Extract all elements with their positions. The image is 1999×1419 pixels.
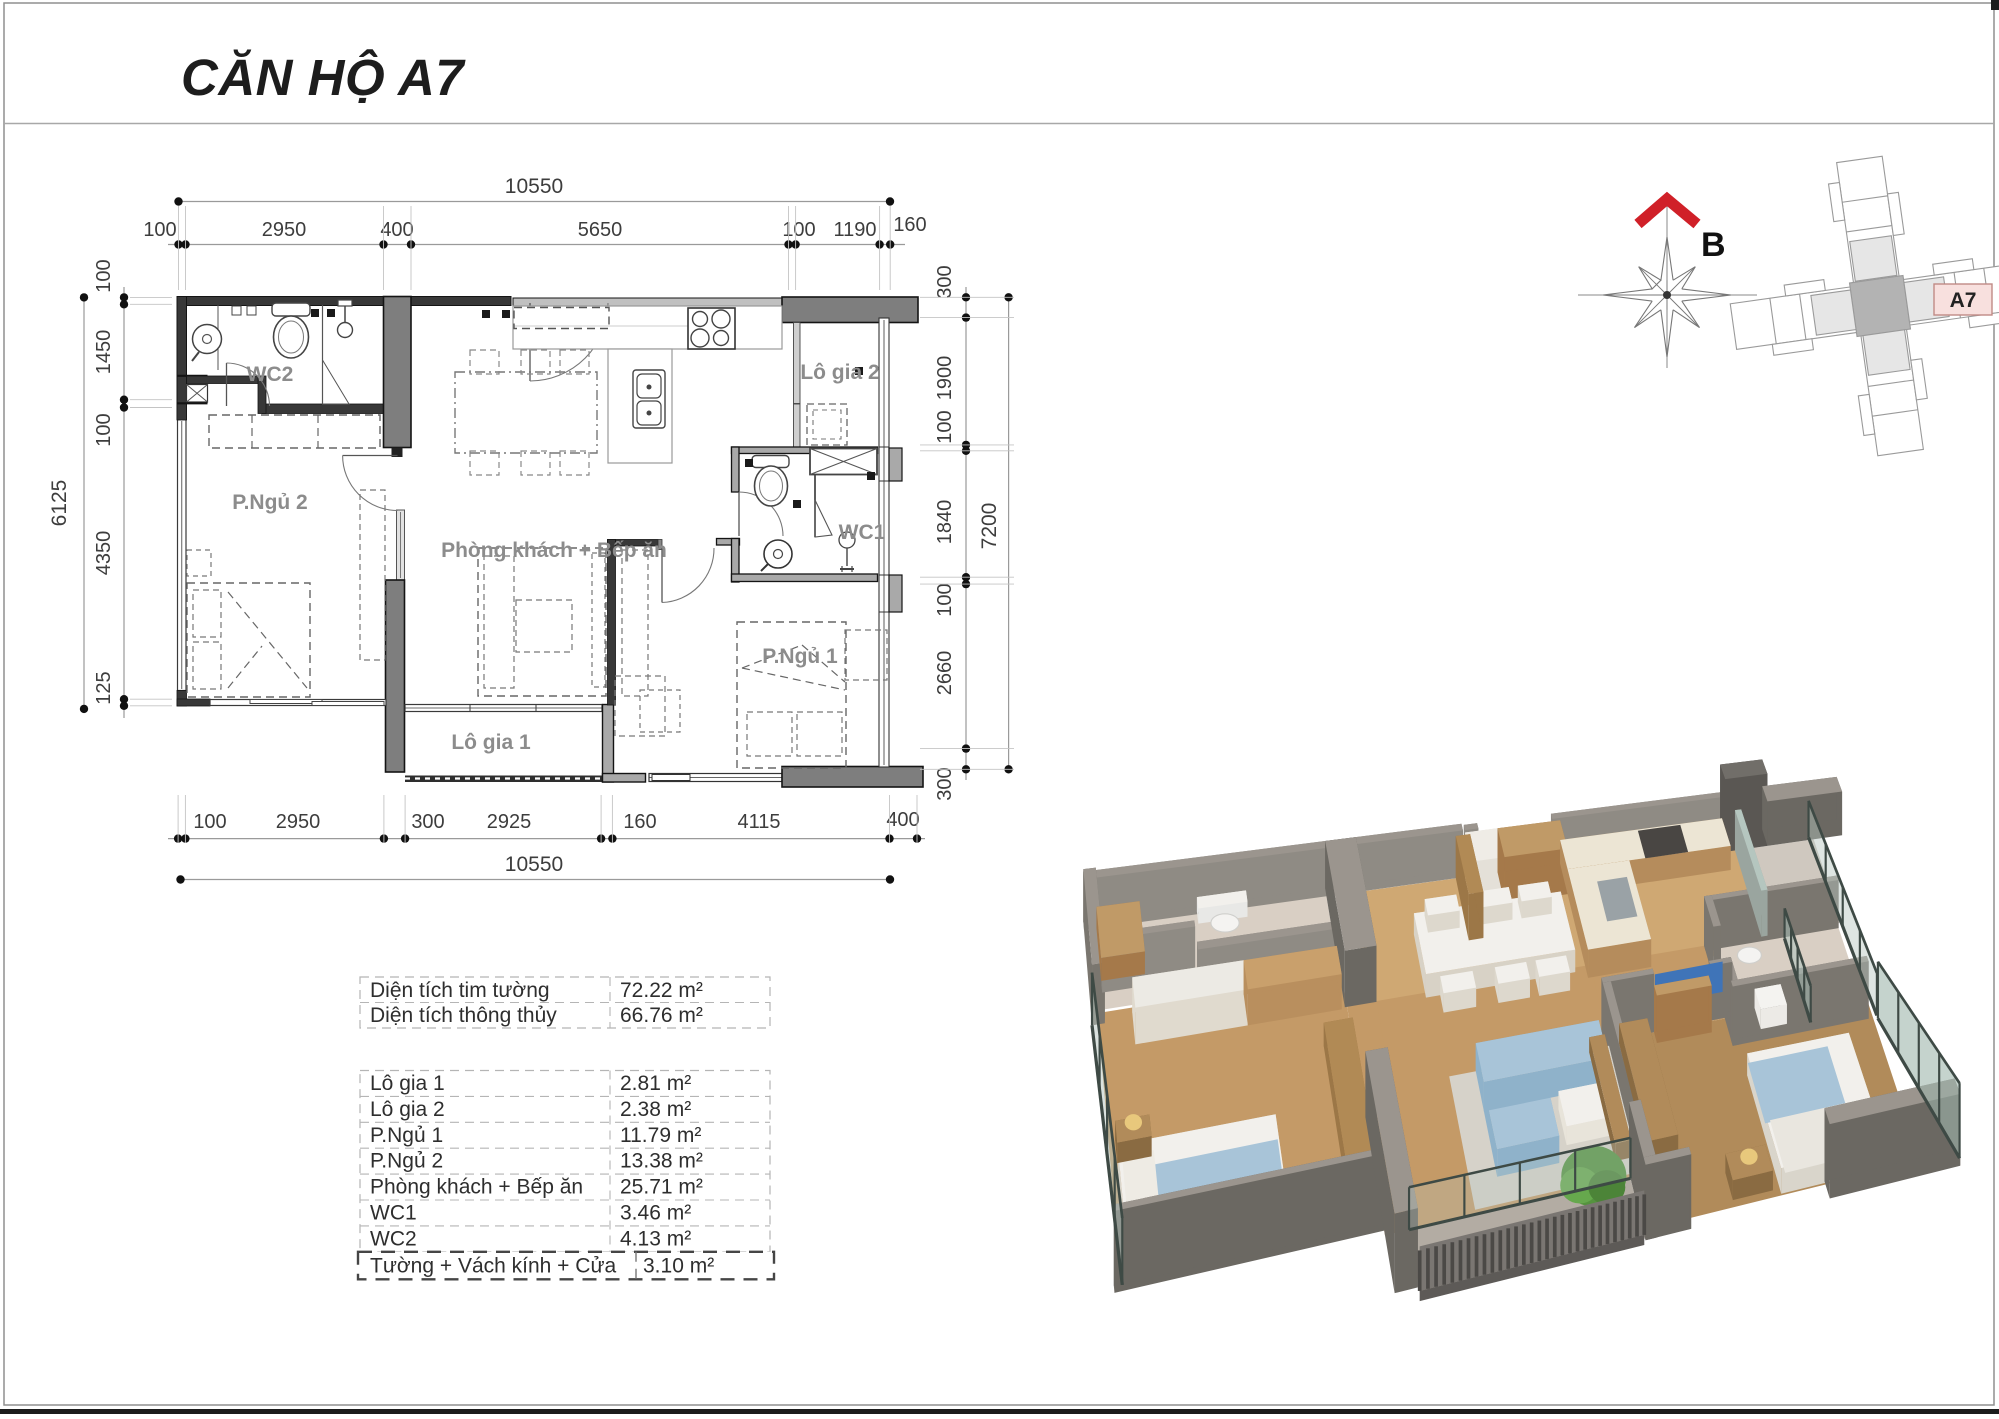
svg-text:P.Ngủ 1: P.Ngủ 1 (762, 645, 838, 668)
svg-text:300: 300 (934, 265, 956, 298)
svg-text:4350: 4350 (93, 531, 115, 576)
svg-text:11.79 m²: 11.79 m² (620, 1124, 701, 1147)
svg-text:2660: 2660 (934, 651, 956, 696)
svg-text:2950: 2950 (276, 811, 321, 833)
svg-text:Diện tích thông thủy: Diện tích thông thủy (370, 1004, 557, 1027)
svg-text:Phòng khách + Bếp ăn: Phòng khách + Bếp ăn (441, 539, 667, 562)
svg-text:2.38 m²: 2.38 m² (620, 1098, 691, 1121)
svg-text:160: 160 (623, 811, 656, 833)
svg-text:10550: 10550 (505, 853, 563, 876)
svg-text:1450: 1450 (93, 330, 115, 375)
svg-text:Tường + Vách kính + Cửa: Tường + Vách kính + Cửa (370, 1254, 616, 1277)
svg-text:400: 400 (886, 809, 919, 831)
svg-text:P.Ngủ 2: P.Ngủ 2 (232, 491, 307, 514)
svg-text:WC1: WC1 (370, 1202, 417, 1225)
svg-text:P.Ngủ 2: P.Ngủ 2 (370, 1150, 443, 1173)
svg-text:P.Ngủ 1: P.Ngủ 1 (370, 1124, 443, 1147)
svg-text:100: 100 (143, 219, 176, 241)
svg-text:3.10 m²: 3.10 m² (643, 1254, 714, 1277)
svg-text:2925: 2925 (487, 811, 532, 833)
svg-text:Lô gia 1: Lô gia 1 (451, 731, 531, 754)
svg-text:100: 100 (93, 413, 115, 446)
svg-text:1190: 1190 (833, 219, 876, 241)
svg-text:WC1: WC1 (839, 521, 886, 544)
svg-text:Lô gia 2: Lô gia 2 (800, 361, 879, 384)
svg-text:5650: 5650 (578, 219, 623, 241)
svg-text:1840: 1840 (934, 500, 956, 545)
svg-text:10550: 10550 (505, 175, 563, 198)
svg-text:CĂN HỘ A7: CĂN HỘ A7 (181, 48, 466, 106)
svg-text:4.13 m²: 4.13 m² (620, 1227, 691, 1250)
svg-text:3.46 m²: 3.46 m² (620, 1202, 691, 1225)
svg-text:160: 160 (893, 214, 926, 236)
svg-text:2950: 2950 (262, 219, 307, 241)
svg-text:Lô gia 1: Lô gia 1 (370, 1072, 445, 1095)
svg-text:66.76 m²: 66.76 m² (620, 1004, 703, 1027)
svg-text:300: 300 (934, 767, 956, 800)
svg-text:Diện tích tim tường: Diện tích tim tường (370, 979, 550, 1002)
svg-text:72.22 m²: 72.22 m² (620, 979, 703, 1002)
svg-text:25.71 m²: 25.71 m² (620, 1176, 703, 1199)
svg-text:B: B (1701, 226, 1726, 264)
svg-text:100: 100 (934, 583, 956, 616)
svg-text:Phòng khách + Bếp ăn: Phòng khách + Bếp ăn (370, 1176, 583, 1199)
svg-text:6125: 6125 (48, 480, 71, 527)
svg-text:100: 100 (782, 219, 815, 241)
svg-text:7200: 7200 (978, 503, 1001, 550)
svg-text:1900: 1900 (934, 356, 956, 401)
svg-text:Lô gia 2: Lô gia 2 (370, 1098, 445, 1121)
svg-text:100: 100 (934, 410, 956, 443)
svg-text:100: 100 (193, 811, 226, 833)
svg-text:A7: A7 (1950, 289, 1977, 312)
svg-text:2.81 m²: 2.81 m² (620, 1072, 691, 1095)
svg-text:100: 100 (93, 259, 115, 292)
svg-text:300: 300 (411, 811, 444, 833)
svg-text:WC2: WC2 (247, 363, 294, 386)
svg-text:125: 125 (93, 671, 115, 704)
svg-text:13.38 m²: 13.38 m² (620, 1150, 703, 1173)
svg-text:WC2: WC2 (370, 1227, 417, 1250)
svg-text:400: 400 (380, 219, 413, 241)
svg-text:4115: 4115 (737, 811, 780, 833)
